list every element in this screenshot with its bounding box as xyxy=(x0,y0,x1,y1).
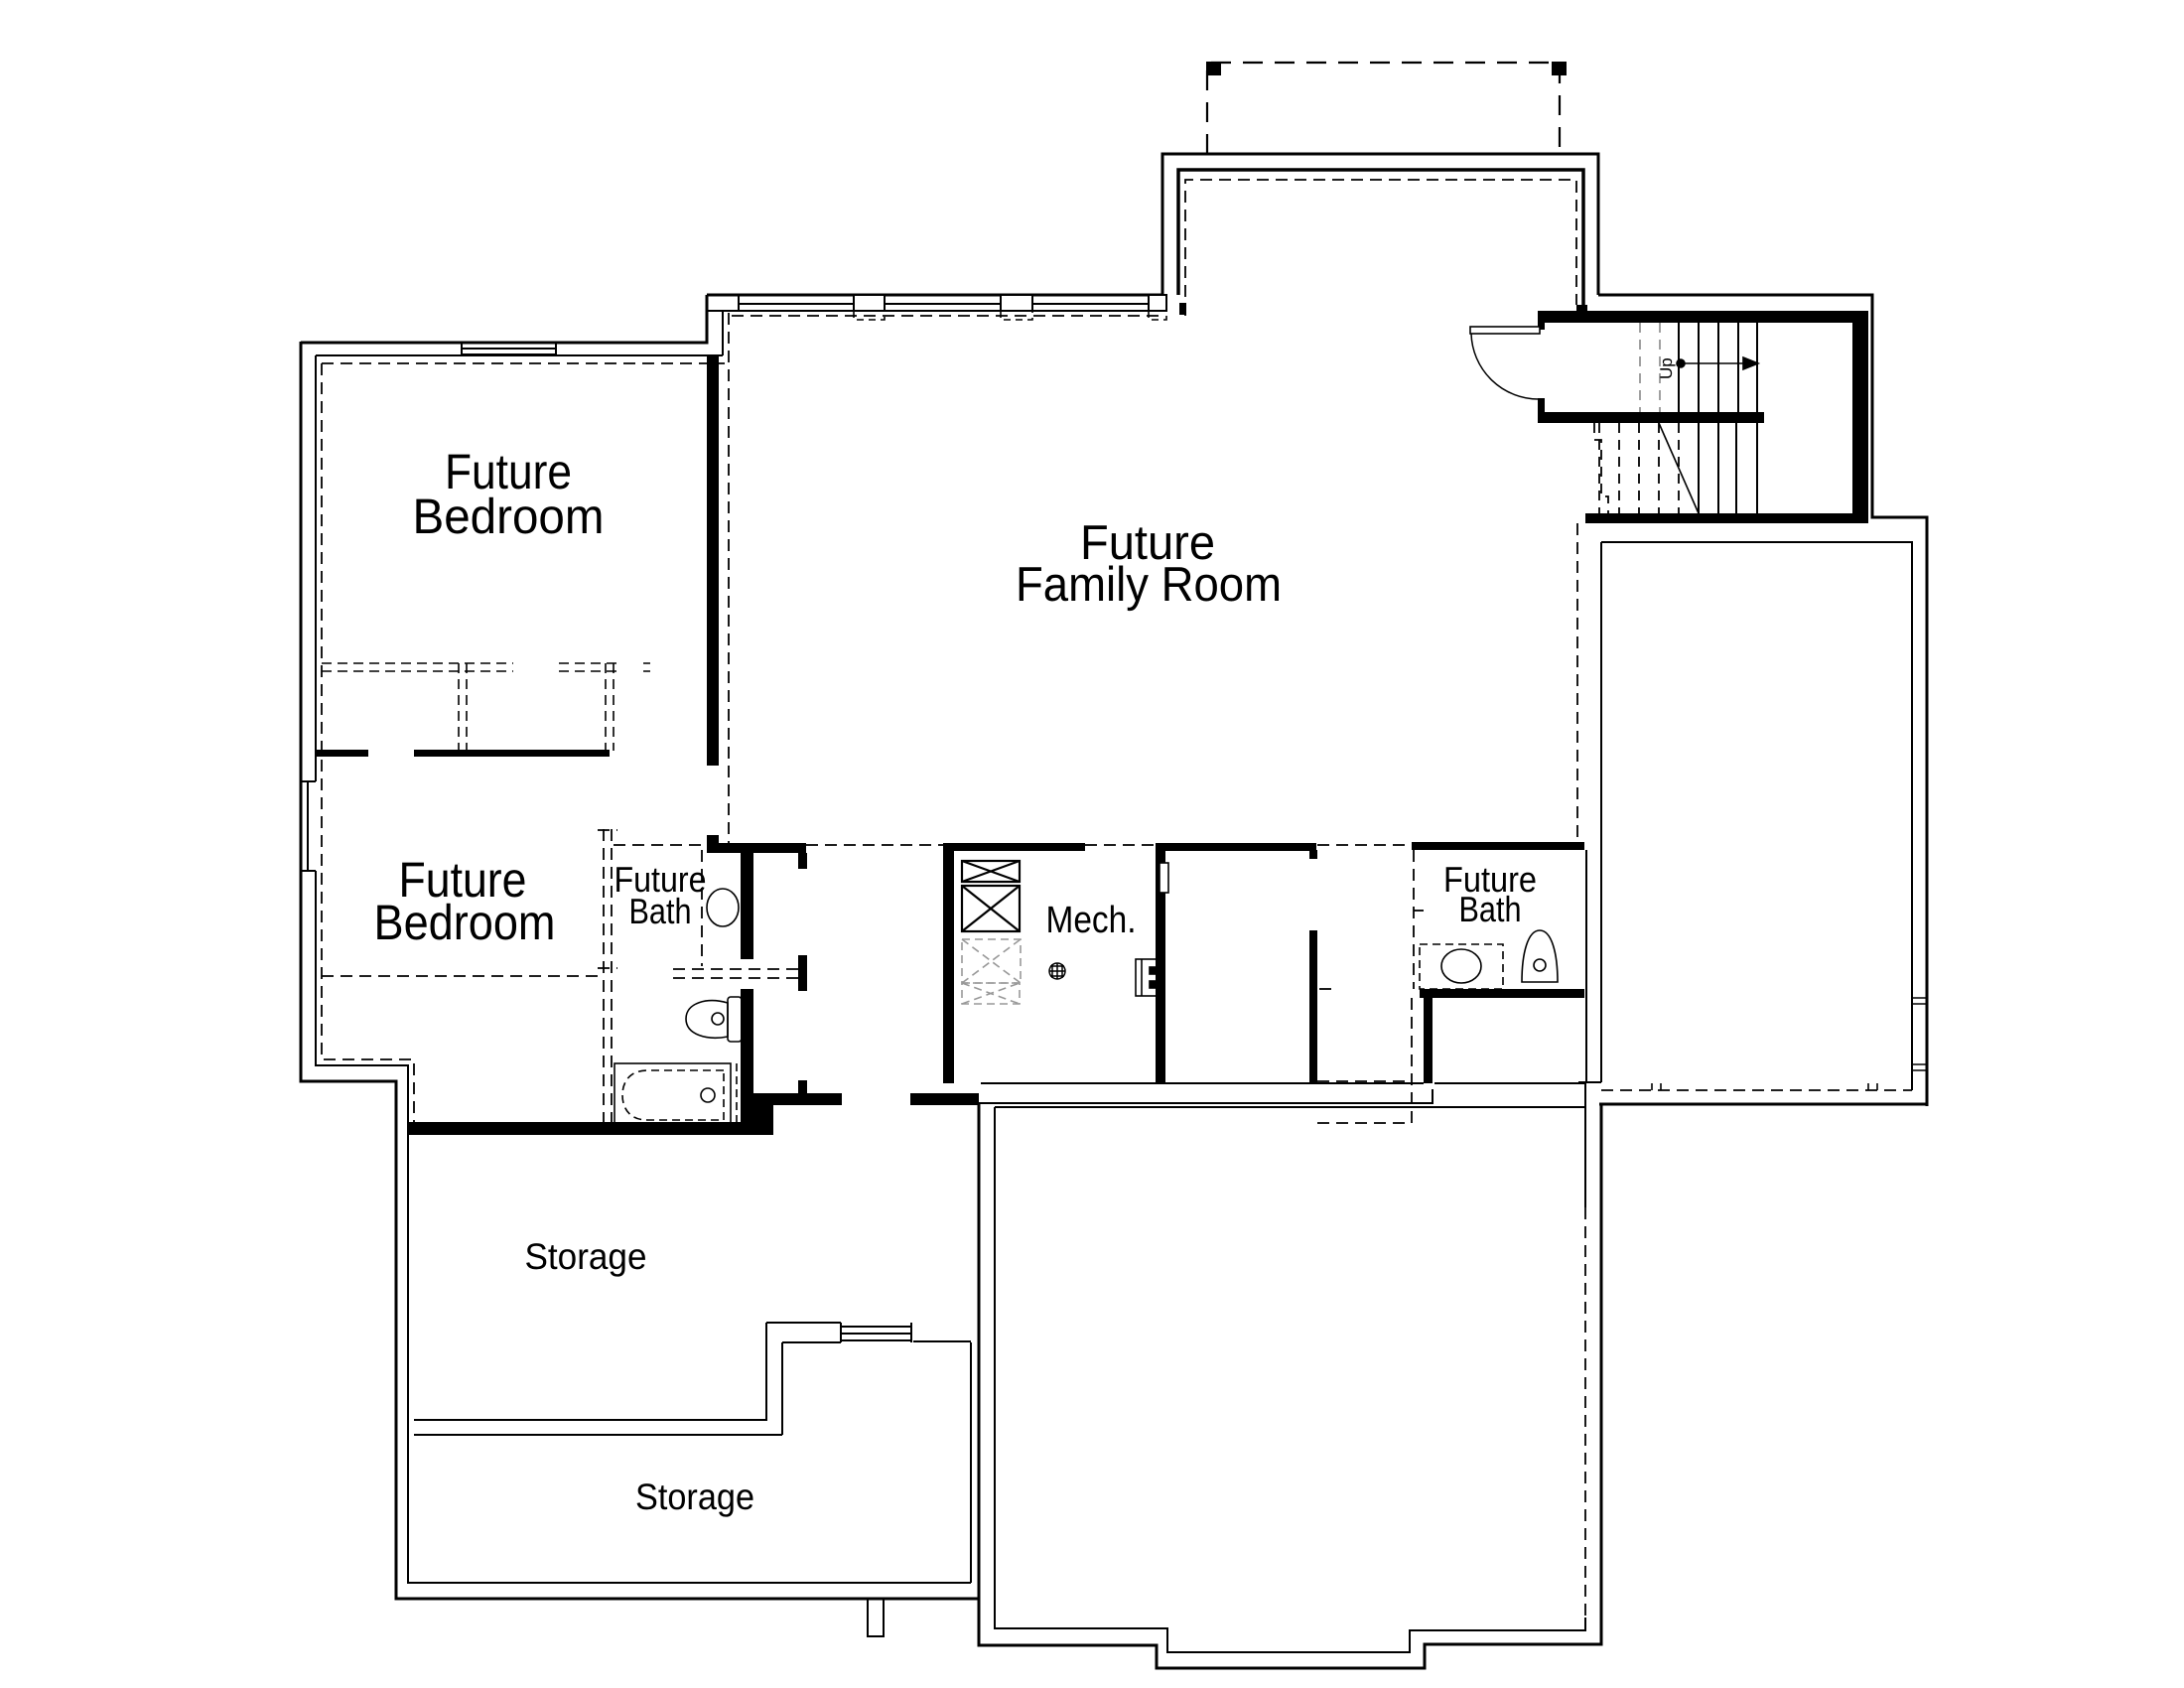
svg-text:Bedroom: Bedroom xyxy=(413,489,605,544)
svg-text:Storage: Storage xyxy=(635,1477,754,1517)
svg-text:Storage: Storage xyxy=(525,1236,647,1277)
svg-text:Bedroom: Bedroom xyxy=(374,895,556,950)
svg-text:Up: Up xyxy=(1657,357,1676,379)
svg-text:Bath: Bath xyxy=(1459,889,1522,929)
svg-text:Family Room: Family Room xyxy=(1016,558,1282,612)
svg-text:Mech.: Mech. xyxy=(1046,900,1137,941)
svg-text:Bath: Bath xyxy=(629,891,692,931)
